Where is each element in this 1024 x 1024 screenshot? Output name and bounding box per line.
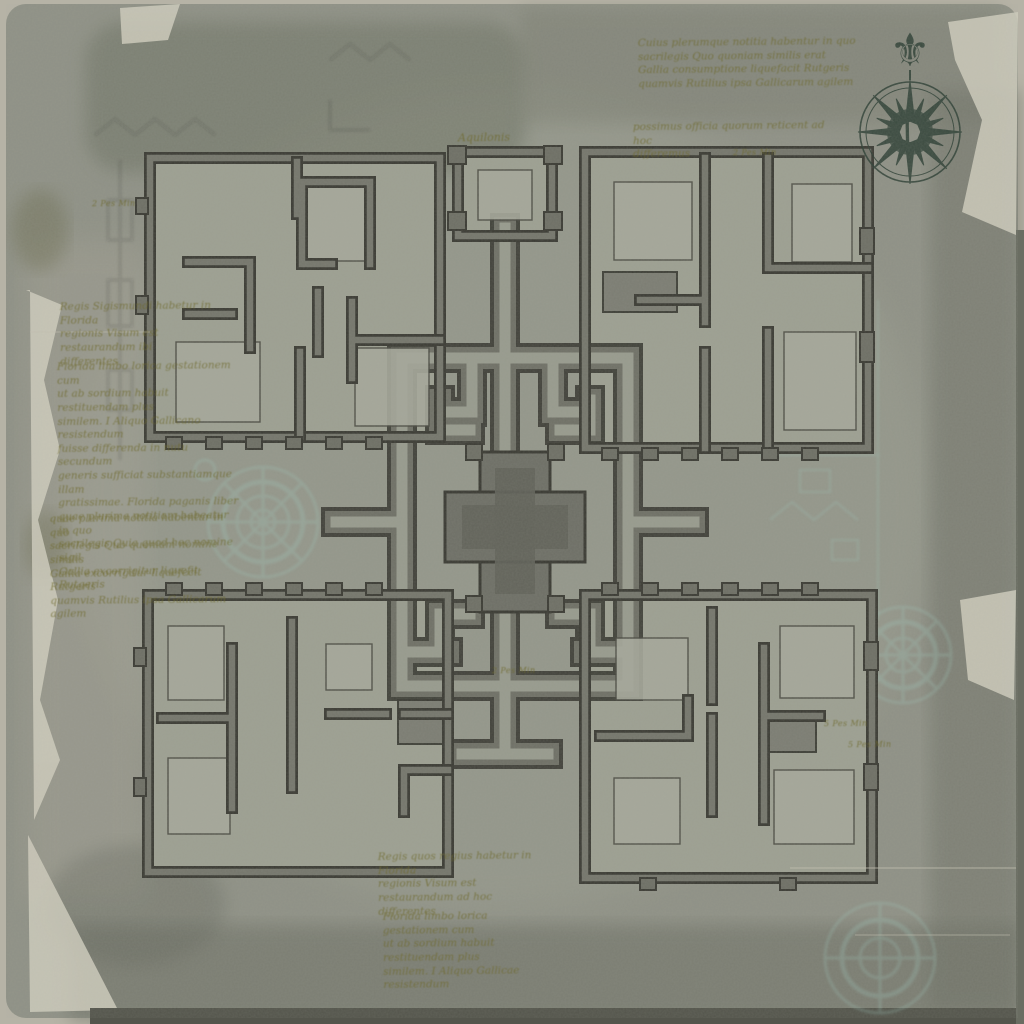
parchment-dungeon-map: ⚜ L Cuius plerumque notitia habentur in … — [0, 0, 1024, 1024]
label-north-gate: Aquilonis — [458, 131, 510, 146]
scale-label-nw: 2 Pes Min — [92, 199, 136, 210]
annotation-bottom-2: Florida limbo lorica gestationem cum ut … — [383, 909, 549, 993]
annotation-top-right: Cuius plerumque notitia habentur in quo … — [638, 35, 859, 92]
scale-label-top-right: 2 Pes Min — [733, 148, 777, 159]
scale-label-se-a: 5 Pes Min — [824, 719, 868, 730]
scale-label-se-b: 5 Pes Min — [848, 740, 892, 751]
scale-label-center: 2 Pes Min — [492, 666, 536, 677]
annotation-left-3: quae plurima notitia habentur in quo sac… — [49, 511, 245, 622]
